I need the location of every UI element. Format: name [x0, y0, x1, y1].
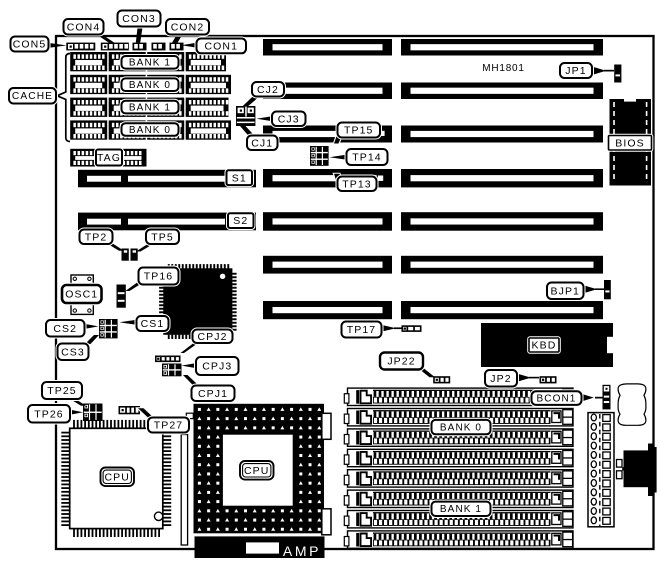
svg-text:CON2: CON2: [171, 21, 205, 33]
svg-text:TP25: TP25: [47, 385, 77, 397]
svg-text:CS2: CS2: [53, 323, 77, 335]
svg-text:CS3: CS3: [61, 346, 85, 358]
svg-text:CON4: CON4: [67, 21, 101, 33]
svg-text:AMP: AMP: [283, 543, 321, 559]
svg-text:TP16: TP16: [144, 271, 174, 283]
svg-text:JP2: JP2: [490, 373, 511, 385]
svg-text:CPU: CPU: [104, 472, 129, 484]
svg-text:CPJ1: CPJ1: [198, 388, 228, 400]
svg-text:BJP1: BJP1: [551, 285, 581, 297]
svg-text:JP22: JP22: [387, 356, 415, 368]
svg-text:S2: S2: [233, 215, 248, 227]
svg-text:TP17: TP17: [347, 324, 377, 336]
svg-text:KBD: KBD: [532, 340, 557, 352]
svg-text:BIOS: BIOS: [615, 137, 645, 149]
svg-text:CPU: CPU: [244, 465, 269, 477]
svg-text:BANK 0: BANK 0: [440, 423, 482, 434]
svg-text:CPJ3: CPJ3: [202, 361, 232, 373]
svg-text:TP27: TP27: [154, 420, 184, 432]
svg-text:CON1: CON1: [204, 40, 238, 52]
svg-text:CON5: CON5: [13, 39, 47, 51]
svg-text:TP13: TP13: [342, 178, 372, 190]
svg-text:CACHE: CACHE: [12, 91, 53, 102]
svg-text:CPJ2: CPJ2: [197, 331, 227, 343]
svg-text:CJ1: CJ1: [251, 137, 273, 149]
svg-text:BANK 0: BANK 0: [129, 80, 171, 91]
svg-text:BANK 0: BANK 0: [129, 125, 171, 136]
svg-text:JP1: JP1: [565, 65, 586, 77]
svg-text:CJ3: CJ3: [278, 113, 300, 125]
svg-text:BANK 1: BANK 1: [440, 504, 482, 515]
svg-text:BCON1: BCON1: [537, 394, 577, 405]
svg-text:TP15: TP15: [344, 125, 374, 137]
svg-text:MH1801: MH1801: [482, 63, 525, 74]
svg-text:TP2: TP2: [85, 231, 108, 243]
svg-text:S1: S1: [232, 172, 247, 184]
svg-text:TP26: TP26: [34, 408, 64, 420]
svg-text:TP14: TP14: [352, 152, 382, 164]
svg-text:CJ2: CJ2: [257, 84, 279, 96]
svg-text:OSC1: OSC1: [65, 289, 98, 301]
svg-text:CON3: CON3: [122, 13, 156, 25]
svg-text:BANK 1: BANK 1: [129, 103, 171, 114]
svg-text:TP5: TP5: [151, 231, 174, 243]
svg-text:TAG: TAG: [97, 152, 121, 164]
svg-text:BANK 1: BANK 1: [129, 58, 171, 69]
svg-text:CS1: CS1: [141, 318, 165, 330]
